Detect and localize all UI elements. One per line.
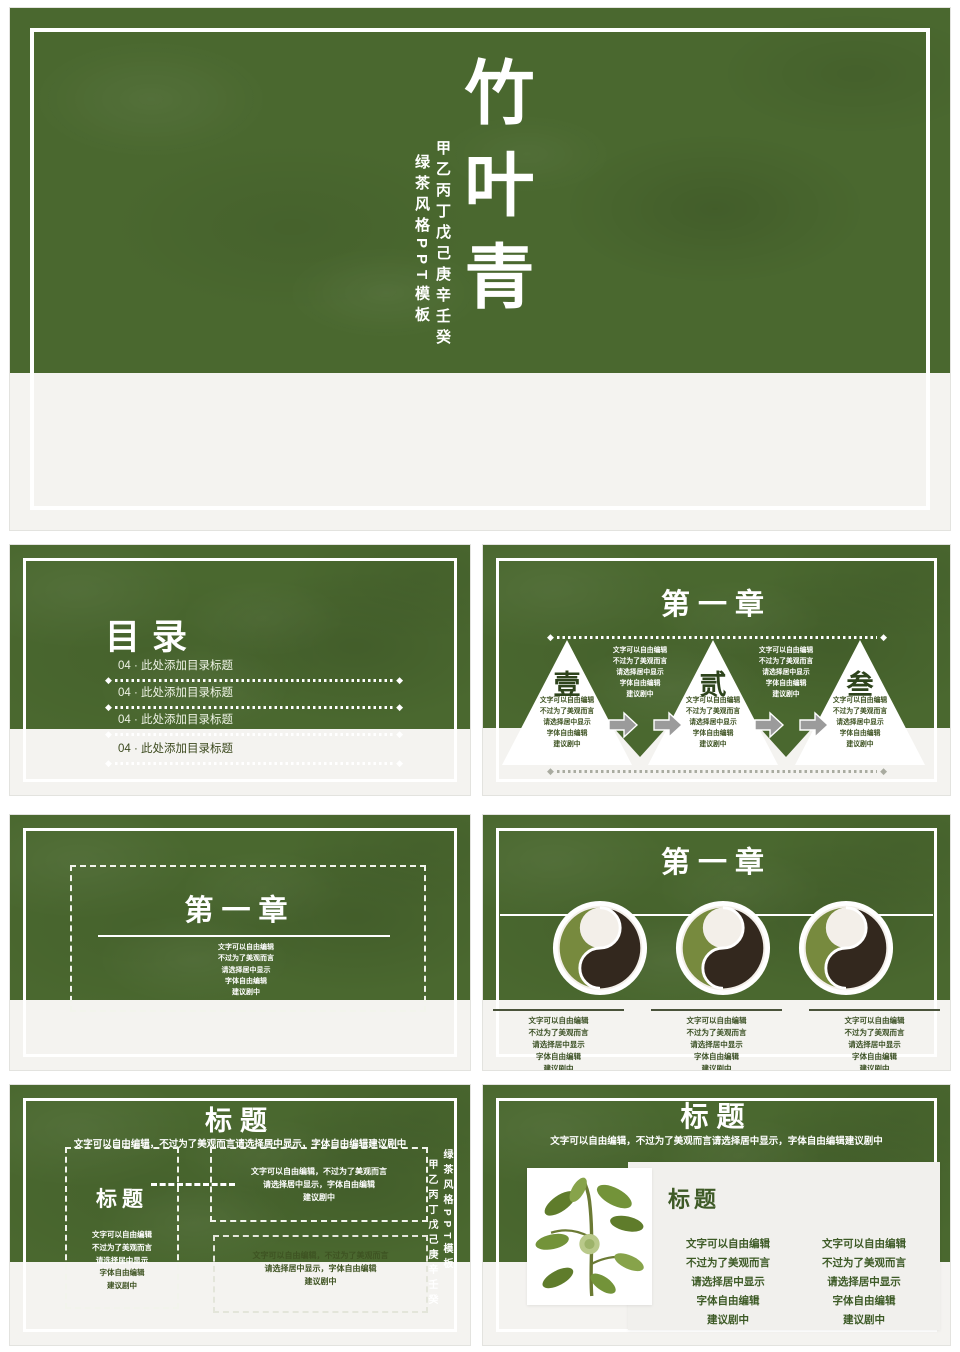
toc-item-label: 04 · 此处添加目录标题 (105, 740, 403, 756)
side-text-stems: 甲乙丙丁戊己庚辛壬癸 (424, 1159, 439, 1339)
yin-yang-tea-plate-image (552, 900, 648, 996)
cover-subtitle-stems: 甲乙丙丁戊己庚辛壬癸 (432, 140, 453, 392)
dotted-divider: ◆◆ (547, 767, 887, 776)
step-text: 文字可以自由编辑不过为了美观而言请选择居中显示字体自由编辑建议剧中 (795, 695, 925, 750)
template-preview-page: 竹叶青 甲乙丙丁戊己庚辛壬癸 绿茶风格PPT模板 目录 04 · 此处添加目录标… (0, 0, 960, 1352)
diamond-icon: ◆ (396, 759, 403, 768)
dashed-box-top-right: 文字可以自由编辑，不过为了美观而言请选择居中显示，字体自由编辑建议剧中 (210, 1147, 428, 1222)
plate-caption: 文字可以自由编辑不过为了美观而言请选择居中显示字体自由编辑建议剧中 (493, 1009, 624, 1070)
toc-item-label: 04 · 此处添加目录标题 (105, 657, 403, 673)
toc-title: 目录 (105, 609, 199, 660)
chapter-title: 第一章 (10, 887, 470, 929)
card-text-columns: 文字可以自由编辑不过为了美观而言请选择居中显示字体自由编辑建议剧中 文字可以自由… (660, 1235, 932, 1329)
dotted-divider: ◆◆ (105, 759, 403, 768)
side-vertical-text: 绿茶风格PPT模板 甲乙丙丁戊己庚辛壬癸 (420, 1149, 454, 1339)
slide-chapter-triangles[interactable]: 第一章 ◆◆ 壹 贰 叁 文字可以自由编辑不过为了美观而言请选择居中显示字体自由… (483, 545, 950, 795)
toc-item: 04 · 此处添加目录标题 ◆◆ (105, 740, 403, 768)
dashed-box-bottom-right: 文字可以自由编辑，不过为了美观而言请选择居中显示，字体自由编辑建议剧中 (213, 1235, 428, 1313)
slide-chapter-plates[interactable]: 第一章 文字可以自由编辑不过为了美观而言请选择居中显示字体自由编辑建议剧中 文字… (483, 815, 950, 1070)
tea-branch-illustration (533, 1174, 646, 1298)
section-subtitle: 文字可以自由编辑，不过为了美观而言请选择居中显示，字体自由编辑建议剧中 (503, 1133, 930, 1147)
card-text: 文字可以自由编辑不过为了美观而言请选择居中显示字体自由编辑建议剧中 (660, 1235, 796, 1329)
slide-title-boxes[interactable]: 标题 文字可以自由编辑，不过为了美观而言请选择居中显示，字体自由编辑建议剧中 标… (10, 1085, 470, 1345)
between-step-text: 文字可以自由编辑不过为了美观而言请选择居中显示字体自由编辑建议剧中 (585, 645, 695, 700)
box-text: 文字可以自由编辑不过为了美观而言请选择居中显示字体自由编辑建议剧中 (67, 1229, 177, 1293)
tea-branch-photo (527, 1168, 652, 1305)
cover-subtitle-style: 绿茶风格PPT模板 (411, 154, 432, 392)
toc-item: 04 · 此处添加目录标题 ◆◆ (105, 657, 403, 685)
diamond-icon: ◆ (396, 730, 403, 739)
dashed-box-left: 标题 文字可以自由编辑不过为了美观而言请选择居中显示字体自由编辑建议剧中 (65, 1147, 179, 1309)
chapter-text: 文字可以自由编辑不过为了美观而言请选择居中显示字体自由编辑建议剧中 (96, 942, 396, 999)
card-text: 文字可以自由编辑不过为了美观而言请选择居中显示字体自由编辑建议剧中 (796, 1235, 932, 1329)
dotted-divider: ◆◆ (105, 730, 403, 739)
yin-yang-tea-plate-image (675, 900, 771, 996)
cover-subtitle-vertical: 甲乙丙丁戊己庚辛壬癸 绿茶风格PPT模板 (404, 140, 453, 392)
yin-yang-tea-plate-image (798, 900, 894, 996)
toc-item: 04 · 此处添加目录标题 ◆◆ (105, 711, 403, 739)
box-title: 标题 (67, 1183, 177, 1213)
step-text: 文字可以自由编辑不过为了美观而言请选择居中显示字体自由编辑建议剧中 (502, 695, 632, 750)
slide-toc[interactable]: 目录 04 · 此处添加目录标题 ◆◆ 04 · 此处添加目录标题 ◆◆ 04 … (10, 545, 470, 795)
section-title: 标题 (10, 1099, 470, 1138)
slide-cover[interactable]: 竹叶青 甲乙丙丁戊己庚辛壬癸 绿茶风格PPT模板 (10, 8, 950, 530)
diamond-icon: ◆ (105, 759, 112, 768)
toc-item-label: 04 · 此处添加目录标题 (105, 684, 403, 700)
toc-item: 04 · 此处添加目录标题 ◆◆ (105, 684, 403, 712)
title-underline (98, 935, 390, 937)
plate-caption: 文字可以自由编辑不过为了美观而言请选择居中显示字体自由编辑建议剧中 (651, 1009, 782, 1070)
diamond-icon: ◆ (880, 767, 887, 776)
diamond-icon: ◆ (105, 730, 112, 739)
slide-title-card[interactable]: 标题 文字可以自由编辑，不过为了美观而言请选择居中显示，字体自由编辑建议剧中 标… (483, 1085, 950, 1345)
diamond-icon: ◆ (547, 767, 554, 776)
plate-caption: 文字可以自由编辑不过为了美观而言请选择居中显示字体自由编辑建议剧中 (809, 1009, 940, 1070)
cover-title-vertical: 竹叶青 (450, 56, 538, 366)
between-step-text: 文字可以自由编辑不过为了美观而言请选择居中显示字体自由编辑建议剧中 (731, 645, 841, 700)
card-title: 标题 (668, 1182, 720, 1214)
side-text-style: 绿茶风格PPT模板 (439, 1149, 454, 1339)
content-card: 标题 文字可以自由编辑不过为了美观而言请选择居中显示字体自由编辑建议剧中 文字可… (628, 1162, 940, 1330)
chapter-title: 第一章 (483, 839, 950, 881)
step-text: 文字可以自由编辑不过为了美观而言请选择居中显示字体自由编辑建议剧中 (648, 695, 778, 750)
section-title: 标题 (483, 1095, 950, 1135)
slide-chapter-frame[interactable]: 第一章 文字可以自由编辑不过为了美观而言请选择居中显示字体自由编辑建议剧中 (10, 815, 470, 1070)
toc-item-label: 04 · 此处添加目录标题 (105, 711, 403, 727)
